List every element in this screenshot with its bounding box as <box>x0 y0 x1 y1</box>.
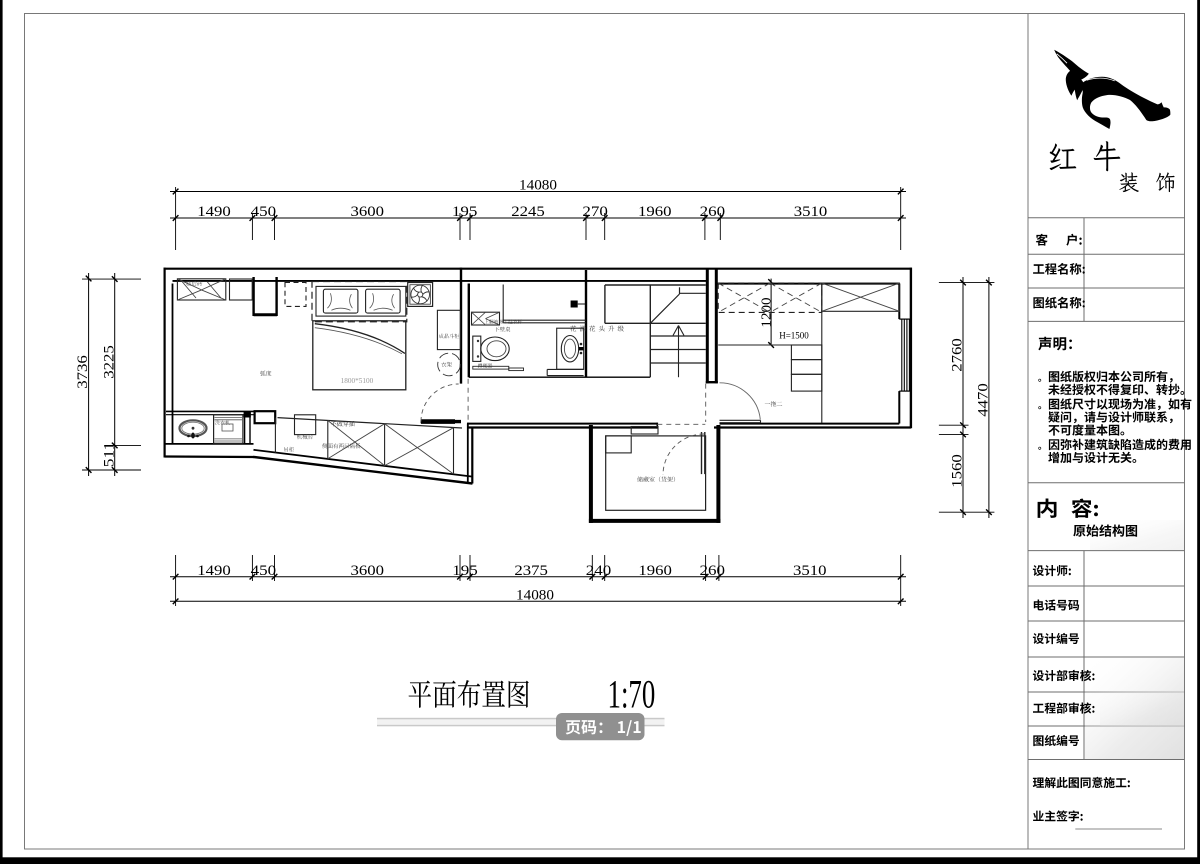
svg-text:2375: 2375 <box>514 563 548 579</box>
svg-text:1960: 1960 <box>638 563 672 579</box>
svg-text:1490: 1490 <box>197 204 231 220</box>
svg-text:3225: 3225 <box>101 345 117 379</box>
svg-text:450: 450 <box>251 204 277 220</box>
svg-text:3600: 3600 <box>351 204 385 220</box>
svg-text:2245: 2245 <box>511 204 545 220</box>
svg-text:3736: 3736 <box>75 355 91 389</box>
svg-text:2760: 2760 <box>950 338 966 372</box>
svg-text:260: 260 <box>700 563 726 579</box>
svg-text:1490: 1490 <box>197 563 231 579</box>
svg-text:14080: 14080 <box>516 588 554 604</box>
svg-text:3510: 3510 <box>793 563 827 579</box>
svg-text:450: 450 <box>251 563 277 579</box>
svg-text:195: 195 <box>452 563 478 579</box>
svg-text:260: 260 <box>700 204 726 220</box>
svg-text:4470: 4470 <box>976 383 992 417</box>
svg-text:1560: 1560 <box>950 454 966 488</box>
svg-text:1960: 1960 <box>638 204 672 220</box>
svg-text:240: 240 <box>586 563 612 579</box>
svg-text:1800*5100: 1800*5100 <box>341 377 374 385</box>
svg-text:3600: 3600 <box>351 563 385 579</box>
svg-text:3510: 3510 <box>794 204 828 220</box>
svg-text:1:70: 1:70 <box>608 672 656 717</box>
svg-text:195: 195 <box>452 204 478 220</box>
svg-text:14080: 14080 <box>519 177 557 193</box>
svg-text:H=1500: H=1500 <box>779 331 809 341</box>
